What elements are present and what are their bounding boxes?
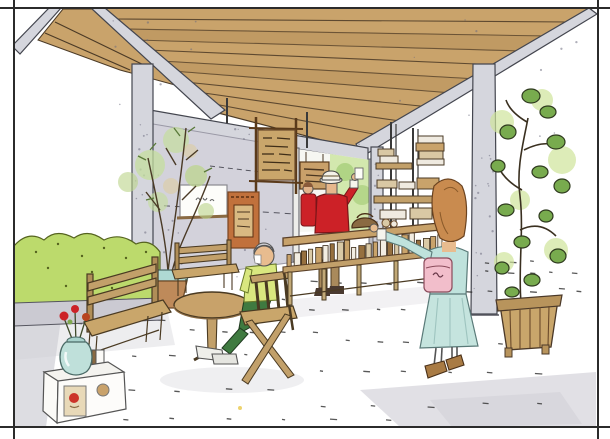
orange-notice-board [228, 192, 259, 248]
foliage-beige-blob [163, 178, 179, 194]
red-flower [60, 312, 69, 321]
counter-jar [391, 221, 397, 227]
bottle [323, 246, 328, 264]
shelf-board [376, 163, 412, 169]
bottle [301, 251, 306, 266]
foliage-blob [118, 172, 138, 192]
woman-cuff [377, 229, 386, 240]
bottle [366, 244, 371, 259]
woman-hand [370, 224, 378, 232]
vendor-red-coat [315, 194, 349, 234]
bottle [337, 242, 343, 262]
counter-jar [382, 219, 390, 227]
customer-sneaker [212, 354, 238, 364]
table-top [174, 292, 250, 318]
bottle [352, 247, 356, 260]
bottle [309, 249, 313, 265]
table-pedestal [207, 316, 217, 352]
slatted-planter [496, 295, 562, 357]
customer-mask [254, 255, 261, 264]
potted-tree-right [490, 89, 576, 302]
mask-left [0, 0, 13, 439]
crate-side-art [97, 384, 109, 396]
bottle [380, 240, 386, 257]
mask-right [599, 0, 610, 439]
foliage-blob [185, 165, 207, 187]
bottle [359, 246, 365, 260]
planter-foot [542, 345, 549, 354]
red-flower [71, 305, 79, 313]
menu-board [249, 117, 303, 194]
poster-red-motif [69, 393, 79, 403]
vendor-cuff [350, 180, 358, 188]
small-figure-red-coat [301, 194, 316, 226]
handbag [424, 258, 452, 292]
woman-shoe [446, 355, 464, 370]
terrace-sketch [0, 0, 610, 439]
held-card [355, 168, 363, 179]
bottle [316, 247, 322, 264]
yellow-fleck [238, 406, 242, 410]
red-flower [82, 313, 90, 321]
woman-shoe [425, 361, 447, 378]
woman-hair [432, 179, 467, 242]
bottle [345, 240, 350, 261]
woman-neck [442, 242, 456, 252]
bottle [330, 244, 334, 263]
foliage-blob [198, 203, 214, 219]
mask-bottom [0, 428, 610, 439]
concrete-column-right [469, 64, 499, 315]
illustration-canvas [0, 0, 610, 439]
bottle [373, 242, 377, 258]
woman-skirt [420, 294, 478, 348]
planter-foot [505, 348, 512, 357]
mask-top [0, 0, 610, 7]
flower-leaf [68, 320, 73, 325]
